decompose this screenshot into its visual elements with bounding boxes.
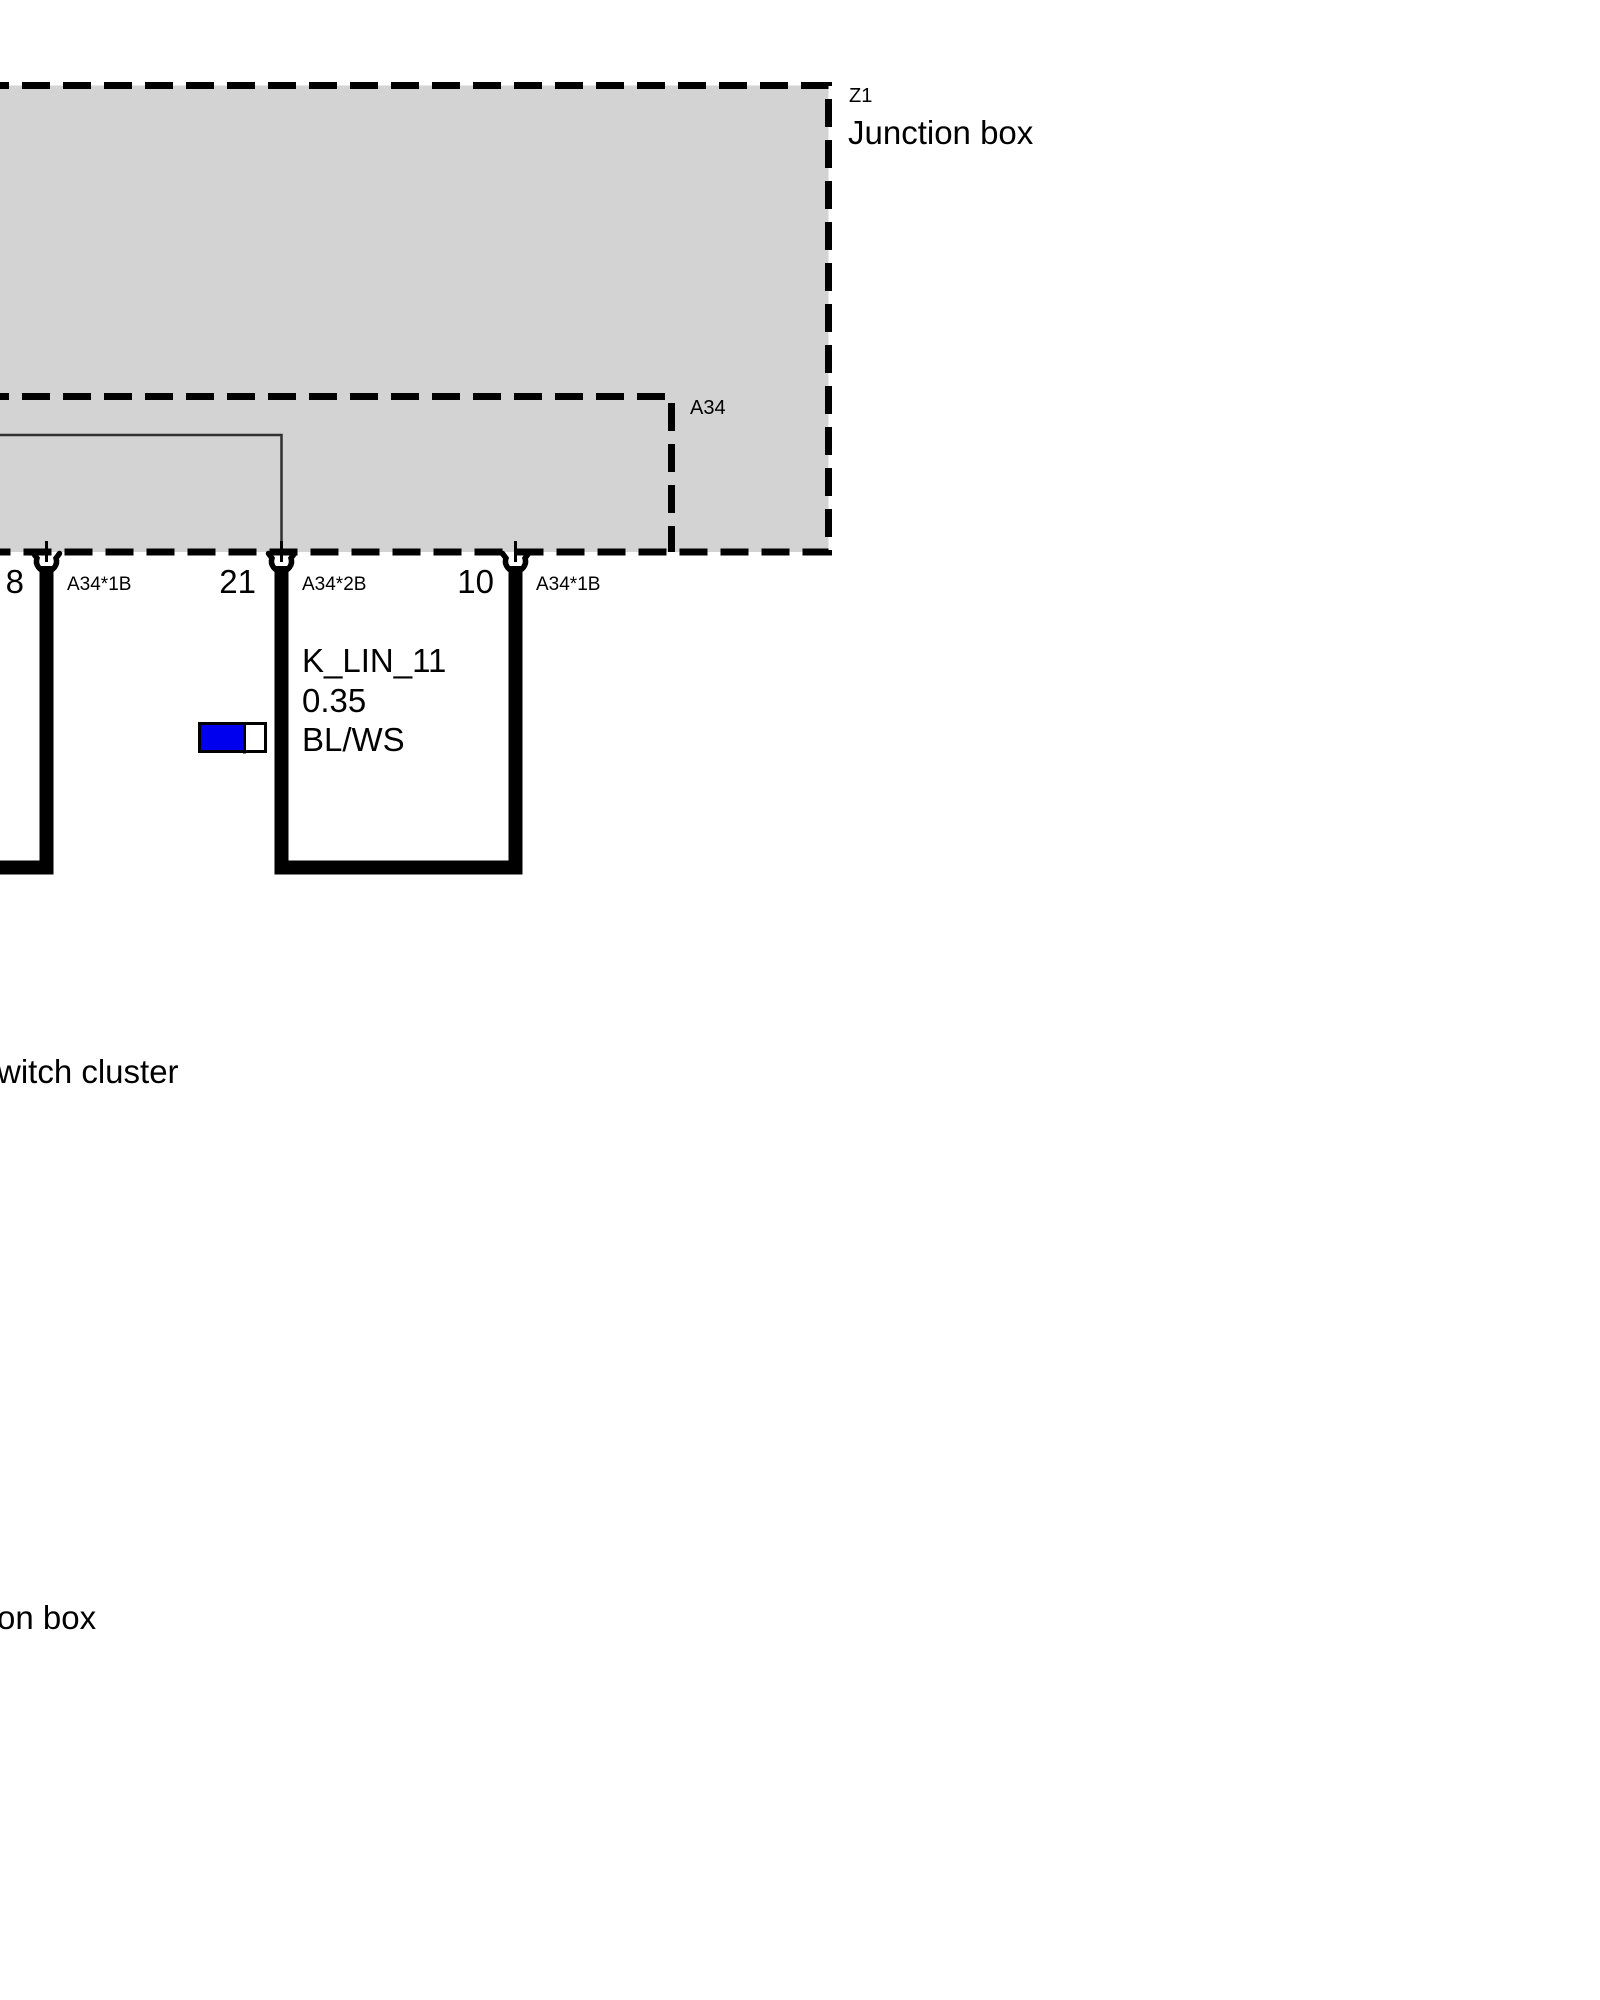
pin-10-connector-label: A34*1B (536, 574, 600, 595)
pin-8-connector-label: A34*1B (67, 574, 131, 595)
junction-box-code-label: Z1 (849, 85, 872, 107)
wire-color-blue-segment (201, 725, 244, 750)
pin-10-number: 10 (457, 563, 494, 600)
wiring-diagram-canvas: Z1 Junction box A34 8 A34*1B 21 A34*2B 1… (0, 0, 1600, 2000)
pin-8-number: 8 (6, 563, 24, 600)
junction-box-z1-body (0, 86, 829, 553)
bottom-component-partial-label: on box (0, 1599, 97, 1636)
wire-signal-label: K_LIN_11 (302, 642, 446, 679)
wire-color-code-label: BL/WS (302, 721, 405, 758)
wire-cross-section-label: 0.35 (302, 682, 366, 719)
left-component-partial-label: witch cluster (0, 1053, 179, 1090)
wiring-diagram-page: Z1 Junction box A34 8 A34*1B 21 A34*2B 1… (0, 0, 1600, 2000)
wire-color-indicator (200, 722, 266, 754)
pin-21-number: 21 (219, 563, 256, 600)
wire-from-pin-8 (0, 566, 47, 868)
junction-box-name-label: Junction box (848, 114, 1034, 151)
module-a34-code-label: A34 (690, 397, 726, 419)
pin-21-connector-label: A34*2B (302, 574, 366, 595)
